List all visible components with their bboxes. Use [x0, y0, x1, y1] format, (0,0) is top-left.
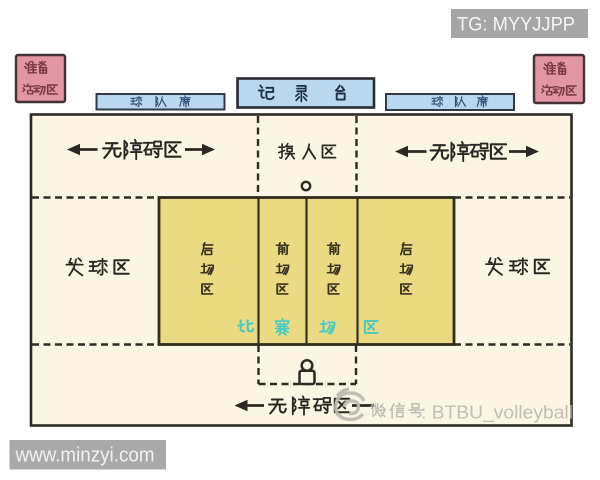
- svg-text:www.minzyi.com: www.minzyi.com: [15, 444, 155, 467]
- svg-text:TG: MYYJJPP: TG: MYYJJPP: [457, 14, 575, 36]
- svg-text:: BTBU_volleyball: : BTBU_volleyball: [421, 403, 573, 424]
